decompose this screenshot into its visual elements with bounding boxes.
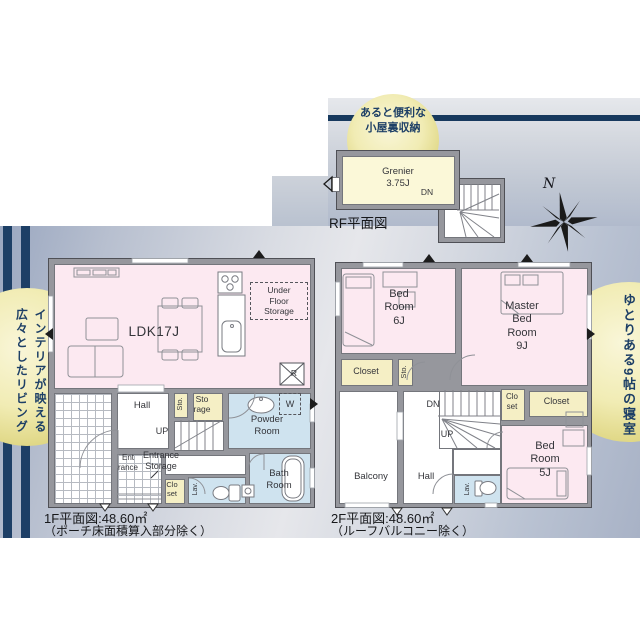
label-dn-2f: DN xyxy=(423,399,443,410)
compass-rose-icon xyxy=(524,187,604,258)
under-floor-storage-box: Under Floor Storage xyxy=(250,282,308,320)
label-up-2f: UP xyxy=(437,429,457,440)
label-hall-1f: Hall xyxy=(116,400,168,412)
washer-box: W xyxy=(279,393,301,415)
label-lav-1f: Lav. xyxy=(189,481,203,497)
label-under-floor-storage: Under Floor Storage xyxy=(264,285,294,316)
label-balcony: Balcony xyxy=(342,471,400,483)
label-fridge: R xyxy=(282,368,306,378)
kitchen-fixtures xyxy=(218,272,245,356)
label-closet-2f-left: Closet xyxy=(340,366,392,377)
label-powder-room: Powder Room xyxy=(226,414,308,437)
label-bed5: Bed Room 5J xyxy=(516,440,574,480)
label-hall-2f: Hall xyxy=(404,471,448,483)
label-closet-2f-right: Closet xyxy=(528,396,585,407)
label-washer: W xyxy=(286,399,295,410)
living-bubble-text: インテリアが映える 広々としたリビング xyxy=(7,298,49,444)
label-storage-1f: Sto rage xyxy=(186,394,218,415)
label-sto-2f: Sto. xyxy=(397,362,411,382)
label-grenier: Grenier 3.75J xyxy=(342,166,454,189)
label-ldk: LDK17J xyxy=(118,324,190,340)
stairs-1f-steps xyxy=(175,420,221,450)
entrance-storage-arrow xyxy=(151,471,158,478)
rf-caption: RF平面図 xyxy=(329,212,388,232)
label-closet-1f: Clo set xyxy=(162,480,182,498)
compass-north-label: N xyxy=(543,176,555,192)
label-up-1f: UP xyxy=(152,426,172,437)
label-bath-room: Bath Room xyxy=(250,468,308,491)
toilet-2f xyxy=(475,481,496,496)
label-bed6: Bed Room 6J xyxy=(370,288,428,328)
label-sto-1f: Sto. xyxy=(173,392,187,416)
label-closet-2f-small: Clo set xyxy=(500,392,524,412)
floor-plan-page: あると便利な 小屋裏収納 インテリアが映える 広々としたリビング ゆとりある9帖… xyxy=(0,0,640,640)
label-rf-dn: DN xyxy=(417,187,437,197)
label-entrance-storage: Entrance Storage xyxy=(132,450,190,472)
caption-1f-note: （ポーチ床面積算入部分除く） xyxy=(44,522,212,539)
label-lav-2f: Lav. xyxy=(461,481,475,497)
caption-2f-note: （ルーフバルコニー除く） xyxy=(331,522,474,539)
furniture-1f xyxy=(68,268,202,377)
rf-bubble-text: あると便利な 小屋裏収納 xyxy=(347,106,439,137)
label-master: Master Bed Room 9J xyxy=(490,300,554,354)
rf-door-marker-icon xyxy=(322,176,334,192)
bedroom-bubble-text: ゆとりある9帖の寝室 xyxy=(612,290,638,440)
rf-stairs-drawing xyxy=(444,184,499,237)
